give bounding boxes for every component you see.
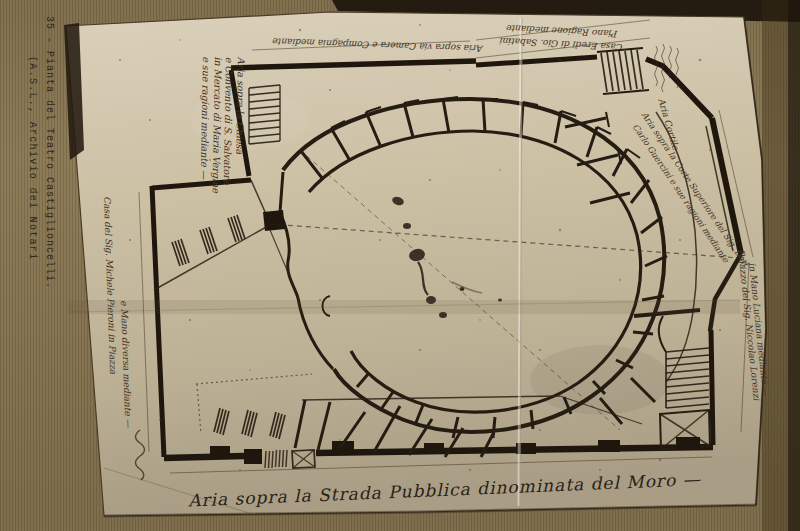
proscenium-pillar	[263, 210, 285, 231]
annotation-church-line: e Convento di S. Salvatore	[222, 57, 236, 194]
bottom-stair-pier	[244, 449, 262, 464]
annotation-church-line: in Mercato di Maria Vergine	[210, 56, 224, 193]
annotation-church-line: Aria sopra la Chiesa	[233, 57, 247, 194]
plan-photo-svg	[0, 0, 800, 531]
plate-caption-title: 35 - Pianta del Teatro Castiglioncelli.	[44, 16, 55, 289]
plate-caption-archive: (A.S.L., Archivio dei Notari	[27, 56, 38, 260]
annotation-church-block: Aria sopra la Chiesa e Convento di S. Sa…	[199, 56, 247, 193]
book-page-photo: 35 - Pianta del Teatro Castiglioncelli. …	[0, 0, 800, 531]
